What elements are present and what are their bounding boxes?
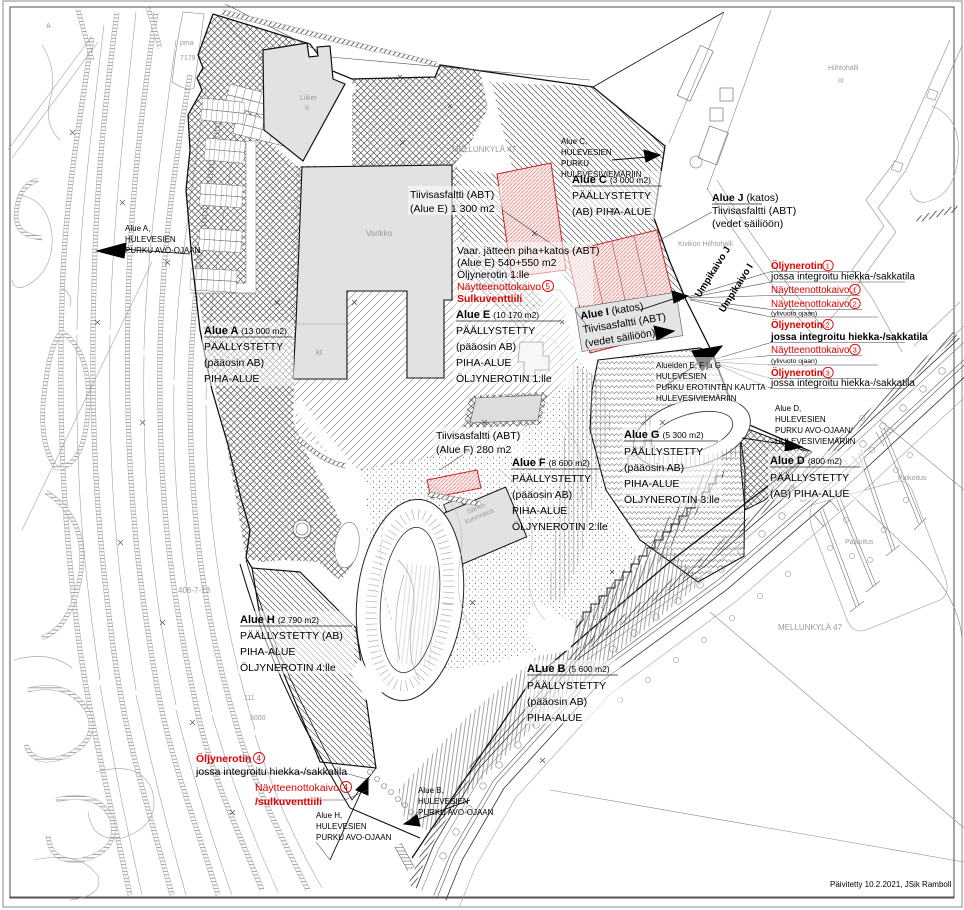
svg-text:Alue B,: Alue B, [418, 786, 444, 795]
svg-text:PÄÄLLYSTETTY: PÄÄLLYSTETTY [572, 190, 651, 202]
svg-text:Tiivisasfaltti (ABT): Tiivisasfaltti (ABT) [712, 205, 796, 217]
svg-text:Öljynerotin: Öljynerotin [196, 752, 251, 765]
svg-text:4: 4 [344, 783, 349, 792]
svg-text:PIHA-ALUE: PIHA-ALUE [512, 505, 567, 517]
svg-text:PURKU AVO-OJAAN/: PURKU AVO-OJAAN/ [775, 426, 853, 435]
svg-text:1: 1 [853, 286, 857, 295]
svg-text:Päivitetty 10.2.2021, JSik Ram: Päivitetty 10.2.2021, JSik Ramboll [830, 880, 952, 889]
svg-text:ÖLJYNEROTIN 2:lle: ÖLJYNEROTIN 2:lle [512, 521, 608, 533]
svg-text:(pääosin AB): (pääosin AB) [527, 696, 587, 708]
svg-text:PIHA-ALUE: PIHA-ALUE [204, 373, 259, 385]
svg-text:Alue C,: Alue C, [561, 137, 587, 146]
svg-text:kt: kt [316, 348, 323, 357]
svg-text:Alue F (8 600 m2): Alue F (8 600 m2) [512, 457, 590, 469]
svg-text:Alue G (5 300 m2): Alue G (5 300 m2) [624, 429, 704, 441]
svg-text:ÖLJYNEROTIN 3:lle: ÖLJYNEROTIN 3:lle [624, 494, 720, 506]
svg-text:PURKU AVO-OJAAN: PURKU AVO-OJAAN [418, 808, 494, 817]
svg-text:PURKU: PURKU [561, 159, 589, 168]
svg-text:4: 4 [257, 754, 262, 763]
svg-text:PÄÄLLYSTETTY: PÄÄLLYSTETTY [456, 325, 535, 337]
svg-text:Liiker: Liiker [300, 95, 317, 102]
svg-text:(vedet säiliöön): (vedet säiliöön) [712, 218, 783, 230]
svg-text:1: 1 [826, 262, 830, 271]
svg-text:HULEVESIEN: HULEVESIEN [561, 148, 612, 157]
svg-text:Alue E (10 170 m2): Alue E (10 170 m2) [456, 309, 539, 321]
svg-text:Sulkuventtiili: Sulkuventtiili [457, 293, 522, 305]
svg-text:ÖLJYNEROTIN 1:lle: ÖLJYNEROTIN 1:lle [456, 373, 552, 385]
svg-text:Alueiden E, F ja G: Alueiden E, F ja G [656, 361, 721, 370]
svg-text:PURKU AVO-OJAAN: PURKU AVO-OJAAN [316, 833, 392, 842]
svg-text:(ylivuoto ojaan): (ylivuoto ojaan) [771, 358, 817, 365]
svg-text:Alue D,: Alue D, [775, 404, 801, 413]
svg-text:MELLUNKYLÄ 47: MELLUNKYLÄ 47 [452, 145, 517, 154]
svg-text:Alue H,: Alue H, [316, 811, 342, 820]
svg-text:/sulkuventtiili: /sulkuventtiili [255, 796, 322, 808]
svg-text:Näytteenottokaivo: Näytteenottokaivo [771, 285, 850, 296]
svg-text:HULEVESIEN: HULEVESIEN [125, 235, 176, 244]
svg-text:Varikko: Varikko [366, 229, 393, 238]
svg-text:Näytteenottokaivo: Näytteenottokaivo [457, 281, 541, 293]
svg-text:HULEVESIEN: HULEVESIEN [316, 822, 367, 831]
svg-text:Alue A (13 000 m2): Alue A (13 000 m2) [204, 325, 287, 337]
svg-text:Alue A,: Alue A, [125, 224, 150, 233]
svg-text:PÄÄLLYSTETTY: PÄÄLLYSTETTY [204, 341, 283, 353]
svg-text:ÖLJYNEROTIN 4:lle: ÖLJYNEROTIN 4:lle [240, 662, 336, 674]
svg-text:(pääosin AB): (pääosin AB) [512, 489, 572, 501]
svg-text:HULEVESIVIEMÄRIIN: HULEVESIVIEMÄRIIN [656, 394, 737, 403]
svg-text:Paikoitus: Paikoitus [898, 475, 927, 482]
svg-text:II: II [305, 105, 309, 112]
svg-text:PURKU AVO-OJAAN: PURKU AVO-OJAAN [125, 246, 201, 255]
svg-text:406-7-13: 406-7-13 [178, 586, 211, 595]
svg-text:Paikoitus: Paikoitus [845, 539, 874, 546]
svg-text:(ylivuoto ojaan): (ylivuoto ojaan) [771, 311, 817, 318]
svg-text:(pääosin AB): (pääosin AB) [456, 341, 516, 353]
svg-text:PIHA-ALUE: PIHA-ALUE [624, 478, 679, 490]
svg-text:HULEVESIEN: HULEVESIEN [775, 415, 826, 424]
svg-text:jossa integroitu hiekka-/sakka: jossa integroitu hiekka-/sakkatila [770, 378, 915, 389]
svg-text:Näytteenottokaivo: Näytteenottokaivo [771, 345, 850, 356]
svg-text:ALue B (5 600 m2): ALue B (5 600 m2) [527, 663, 610, 675]
svg-text:(Alue E) 1 300 m2: (Alue E) 1 300 m2 [410, 203, 495, 215]
svg-text:5000: 5000 [250, 715, 266, 722]
svg-text:3: 3 [826, 369, 830, 378]
svg-text:2: 2 [853, 300, 857, 309]
svg-text:7179: 7179 [180, 55, 196, 62]
svg-text:Näytteenottokaivo: Näytteenottokaivo [255, 782, 339, 794]
svg-text:Alue H (2 790 m2): Alue H (2 790 m2) [240, 614, 319, 626]
svg-text:Näytteenottokaivo: Näytteenottokaivo [771, 299, 850, 310]
svg-text:(AB) PIHA-ALUE: (AB) PIHA-ALUE [572, 206, 651, 218]
svg-text:Öljynerotin: Öljynerotin [771, 261, 823, 272]
svg-text:jossa integroitu hiekka-/sakka: jossa integroitu hiekka-/sakkatila [770, 272, 915, 283]
svg-text:Alue D (800 m2): Alue D (800 m2) [770, 455, 842, 467]
svg-text:111: 111 [244, 695, 255, 702]
svg-text:HULEVESIEN: HULEVESIEN [418, 797, 469, 806]
svg-text:HULEVESIEN: HULEVESIEN [656, 372, 707, 381]
svg-text:PÄÄLLYSTETTY: PÄÄLLYSTETTY [527, 680, 606, 692]
svg-text:(pääosin AB): (pääosin AB) [624, 462, 684, 474]
svg-text:PURKU EROTINTEN KAUTTA: PURKU EROTINTEN KAUTTA [656, 383, 766, 392]
svg-text:3: 3 [853, 346, 857, 355]
svg-text:jossa integroitu hiekka-/sakka: jossa integroitu hiekka-/sakkatila [770, 332, 928, 343]
svg-text:PIHA-ALUE: PIHA-ALUE [527, 712, 582, 724]
svg-text:A: A [46, 23, 51, 30]
svg-text:PÄÄLLYSTETTY: PÄÄLLYSTETTY [770, 472, 849, 484]
svg-text:Kivikon Hiihtohalli: Kivikon Hiihtohalli [678, 241, 733, 248]
svg-text:PÄÄLLYSTETTY (AB): PÄÄLLYSTETTY (AB) [240, 630, 343, 642]
svg-text:(Alue E) 540+550 m2: (Alue E) 540+550 m2 [457, 257, 557, 269]
svg-text:Vaar. jätteen piha+katos (ABT): Vaar. jätteen piha+katos (ABT) [457, 245, 600, 257]
svg-text:PÄÄLLYSTETTY: PÄÄLLYSTETTY [624, 446, 703, 458]
svg-text:Tiivisasfaltti (ABT): Tiivisasfaltti (ABT) [410, 189, 494, 201]
svg-text:Öljynerotin 1:lle: Öljynerotin 1:lle [457, 269, 530, 281]
svg-text:Tiivisasfaltti (ABT): Tiivisasfaltti (ABT) [436, 430, 520, 442]
svg-text:PÄÄLLYSTETTY: PÄÄLLYSTETTY [512, 473, 591, 485]
svg-text:2: 2 [826, 321, 830, 330]
svg-text:Öljynerotin: Öljynerotin [771, 320, 823, 331]
svg-text:MELLUNKYLÄ 47: MELLUNKYLÄ 47 [778, 623, 843, 632]
svg-text:jossa integroitu hiekka-/sakka: jossa integroitu hiekka-/sakkatila [195, 766, 347, 778]
svg-text:Alue C (3 000 m2): Alue C (3 000 m2) [572, 174, 651, 186]
svg-text:(Alue F) 280 m2: (Alue F) 280 m2 [436, 444, 511, 456]
svg-text:Alue J (katos): Alue J (katos) [712, 192, 779, 204]
svg-text:HULEVESIVIEMÄRIIN: HULEVESIVIEMÄRIIN [775, 437, 856, 446]
svg-text:(pääosin AB): (pääosin AB) [204, 357, 264, 369]
svg-text:5: 5 [546, 282, 551, 291]
svg-text:PIHA-ALUE: PIHA-ALUE [456, 357, 511, 369]
svg-text:pma: pma [180, 40, 194, 47]
svg-text:Hiihtohalli: Hiihtohalli [828, 65, 859, 72]
svg-text:III: III [838, 78, 844, 85]
svg-text:PIHA-ALUE: PIHA-ALUE [240, 646, 295, 658]
